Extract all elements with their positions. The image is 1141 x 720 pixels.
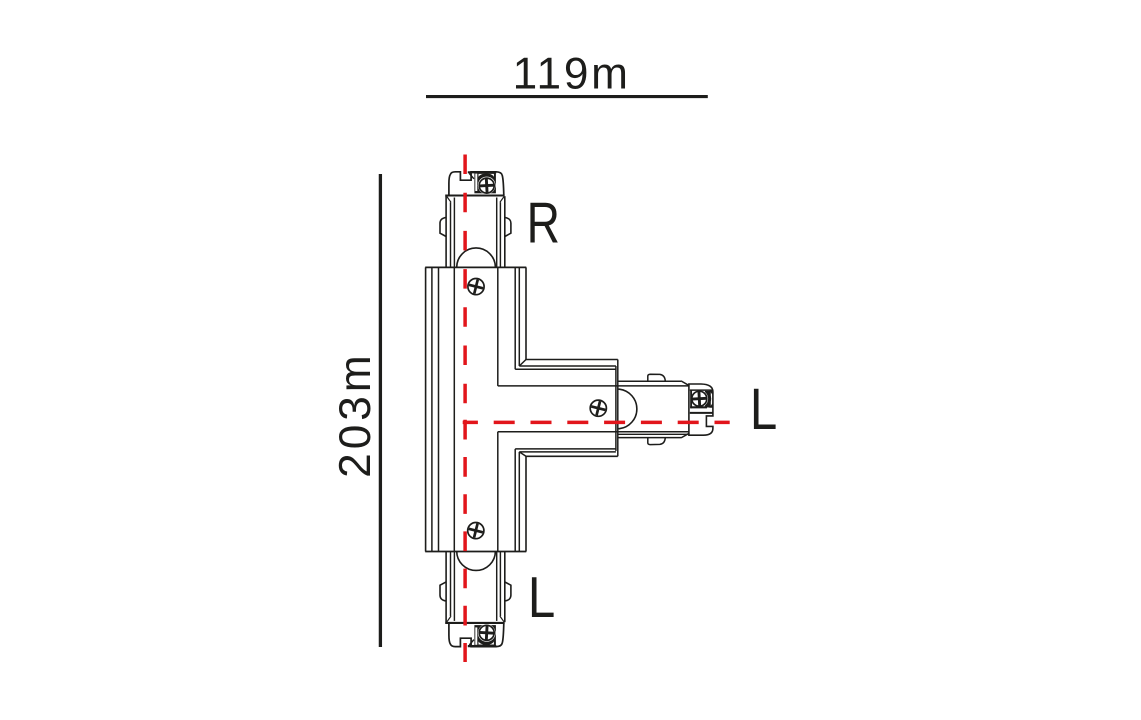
svg-text:L: L: [528, 565, 555, 630]
svg-text:L: L: [750, 377, 777, 442]
svg-text:R: R: [527, 192, 560, 256]
svg-text:119m: 119m: [513, 50, 631, 99]
svg-text:203m: 203m: [331, 351, 380, 478]
